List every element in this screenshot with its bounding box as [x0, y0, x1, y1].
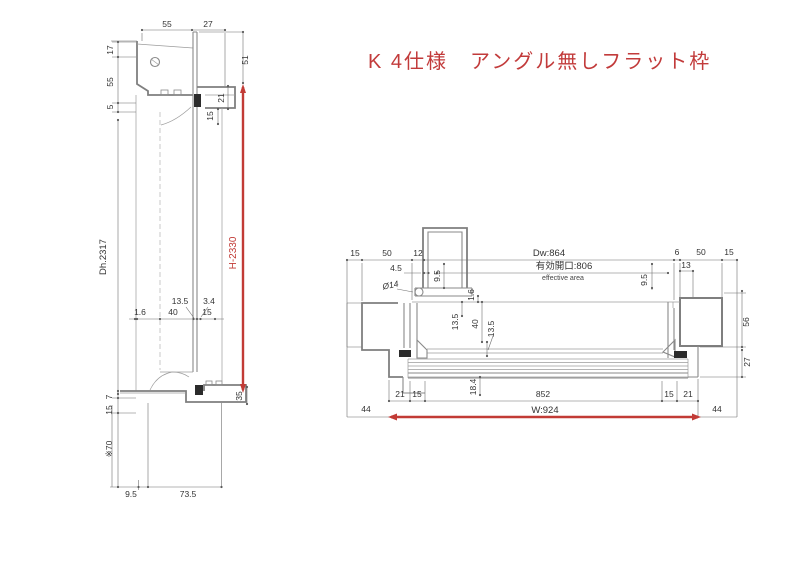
left-view: 55 27 17 55 5 51 21 15 Dh.2317 H-2330 13… — [98, 19, 250, 499]
dim-mid-135b: 13.5 — [486, 320, 496, 337]
dim-left-55: 55 — [105, 77, 115, 87]
head-frame-outline — [137, 41, 193, 95]
head-gasket — [194, 94, 201, 107]
dim-mid-15: 15 — [202, 307, 212, 317]
dim-br-44: 44 — [712, 404, 722, 414]
dim-tr-50: 50 — [696, 247, 706, 257]
left-jamb-profile-lines — [404, 303, 417, 358]
dim-top-27: 27 — [203, 19, 213, 29]
dim-overall-height: H-2330 — [228, 236, 239, 269]
dim-tr-95: 9.5 — [639, 274, 649, 286]
cad-drawing: K 4仕様 アングル無しフラット枠 — [0, 0, 800, 565]
dim-line-27 — [700, 350, 746, 377]
dim-tl-12: 12 — [413, 248, 423, 258]
leader-phi14 — [397, 289, 413, 292]
right-jamb-step — [668, 302, 680, 308]
dim-tr-15: 15 — [724, 247, 734, 257]
dim-tl-15: 15 — [350, 248, 360, 258]
dim-door-height: Dh.2317 — [98, 239, 109, 275]
sill-outline — [120, 385, 246, 402]
dim-mid-40: 40 — [470, 319, 480, 329]
dim-mid-34: 3.4 — [203, 296, 215, 306]
right-view-dimensions: 15 50 12 4.5 Ø14 9.5 1.6 Dw:864 有効開口:806… — [346, 247, 752, 421]
dim-right-15: 15 — [205, 111, 215, 121]
dim-br-21: 21 — [683, 389, 693, 399]
dim-tr-56: 56 — [741, 317, 751, 327]
dim-mid-184: 18.4 — [468, 378, 478, 395]
head-inner-slope — [137, 44, 193, 48]
left-view-profile — [111, 32, 246, 402]
left-wall-end — [347, 303, 362, 347]
drawing-title: K 4仕様 アングル無しフラット枠 — [368, 50, 711, 73]
dim-mid-16: 1.6 — [134, 307, 146, 317]
right-jamb-base — [688, 346, 698, 377]
right-gasket — [674, 351, 687, 358]
dim-bl-15: 15 — [412, 389, 422, 399]
dim-effective-opening: 有効開口:806 — [536, 260, 593, 272]
sill-gasket — [195, 385, 203, 395]
dim-overall-width: W:924 — [531, 405, 558, 416]
dim-mid-135a: 13.5 — [450, 313, 460, 330]
dim-right-21: 21 — [216, 93, 226, 103]
dim-bottom-15: 15 — [104, 405, 114, 415]
dim-line-left-head — [112, 42, 136, 112]
door-swing-arc-top — [161, 107, 191, 125]
dim-tl-50: 50 — [382, 248, 392, 258]
right-wall-block — [680, 298, 722, 346]
dim-line-13 — [680, 271, 693, 297]
dim-tr-27: 27 — [742, 357, 752, 367]
dim-mid-40: 40 — [168, 307, 178, 317]
hole-phi14 — [415, 288, 423, 296]
dim-tr-6: 6 — [675, 247, 680, 257]
dim-bottom-35: 35 — [234, 391, 244, 401]
dim-right-51: 51 — [240, 55, 250, 65]
dim-effective-area-en: effective area — [542, 275, 584, 282]
dim-mid-16: 1.6 — [466, 289, 476, 301]
dim-left-17: 17 — [105, 45, 115, 55]
dim-line-bottom-left — [112, 391, 136, 487]
dim-tl-45: 4.5 — [390, 263, 402, 273]
arrow-left-icon — [388, 414, 397, 421]
dim-bl-21: 21 — [395, 389, 405, 399]
door-leaf-section — [193, 32, 197, 372]
door-sweep-bottom — [150, 372, 189, 390]
left-door-stop — [417, 340, 427, 358]
arrow-right-icon — [692, 414, 701, 421]
right-view: 15 50 12 4.5 Ø14 9.5 1.6 Dw:864 有効開口:806… — [346, 228, 752, 421]
dim-bl-44: 44 — [361, 404, 371, 414]
screw-slot — [151, 59, 159, 65]
dim-mid-135: 13.5 — [172, 296, 189, 306]
right-door-stop — [663, 340, 675, 357]
dim-bottom-735: 73.5 — [180, 489, 197, 499]
arrow-up-icon — [240, 84, 246, 93]
dim-frame-width: Dw:864 — [533, 248, 565, 259]
door-leaf-plan — [408, 359, 688, 378]
dim-tl-95: 9.5 — [432, 270, 442, 282]
dim-line-bottom — [110, 403, 222, 490]
dim-852: 852 — [536, 389, 550, 399]
right-jamb-profile-lines — [668, 302, 674, 358]
dim-bottom-7: 7 — [104, 394, 114, 399]
dim-bottom-70: ※70 — [104, 440, 114, 457]
dim-bottom-95: 9.5 — [125, 489, 137, 499]
left-jamb-outline — [362, 303, 403, 377]
dim-br-15: 15 — [664, 389, 674, 399]
left-gasket — [399, 350, 411, 357]
dim-line-51 — [199, 32, 243, 83]
dim-left-5: 5 — [105, 104, 115, 109]
frame-stop-lines — [427, 349, 663, 353]
dim-top-55: 55 — [162, 19, 172, 29]
dim-phi14: Ø14 — [380, 278, 399, 291]
drawing-page: K 4仕様 アングル無しフラット枠 — [0, 0, 800, 565]
striker-box-outer — [423, 228, 467, 288]
dim-tr-13: 13 — [681, 260, 691, 270]
